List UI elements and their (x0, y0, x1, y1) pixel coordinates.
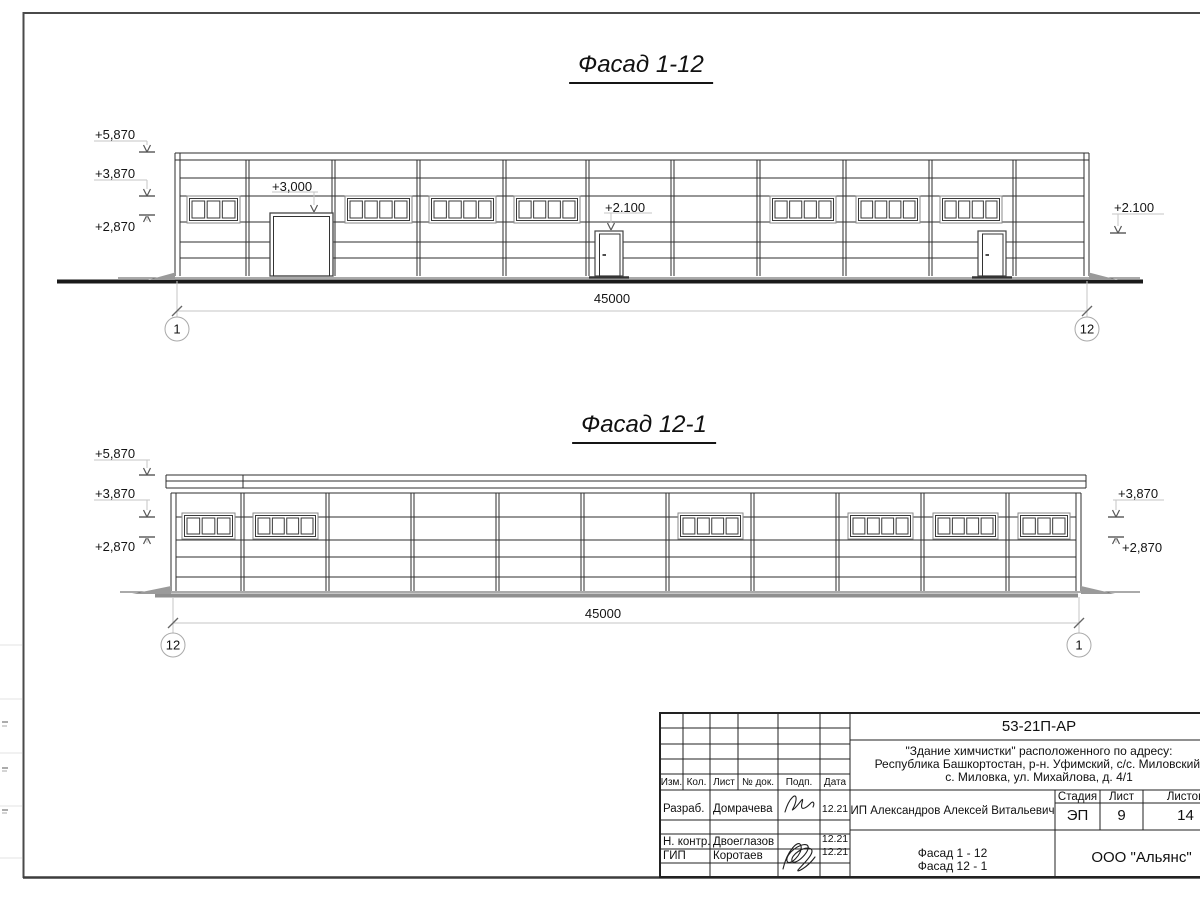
titleblock-code: 53-21П-АР (850, 718, 1200, 735)
rev-header-podp: Подп. (778, 777, 820, 788)
grid-axis-bubble-1b: 1 (1075, 638, 1082, 653)
grid-axis-bubble-12: 12 (1080, 322, 1094, 337)
sheets-value: 14 (1143, 807, 1200, 824)
elevation-label-f2-2870: +2,870 (95, 539, 135, 554)
doc-name-line2: Фасад 12 - 1 (850, 859, 1055, 873)
row-name-gip: Коротаев (713, 850, 763, 862)
elevation-label-f2-5870: +5,870 (95, 446, 135, 461)
rev-header-kol: Кол. (683, 777, 710, 788)
facade-1-12-title: Фасад 1-12 (569, 51, 713, 84)
grid-axis-bubble-1: 1 (173, 322, 180, 337)
elevation-label-f1-2870: +2,870 (95, 219, 135, 234)
titleblock-project-line1: "Здание химчистки" расположенного по адр… (850, 744, 1200, 758)
doc-name-line1: Фасад 1 - 12 (850, 846, 1055, 860)
stage-header: Стадия (1055, 791, 1100, 803)
elevation-label-f2-3870: +3,870 (95, 486, 135, 501)
row-date-gip: 12.21 (820, 846, 850, 858)
rev-header-list: Лист (710, 777, 738, 788)
rev-header-data: Дата (820, 777, 850, 788)
drawing-sheet: Фасад 1-12 +5,870 +3,870 +2,870 +3,000 +… (0, 0, 1200, 900)
sheets-header: Листов (1143, 791, 1200, 803)
elevation-label-f2-right-3870: +3,870 (1118, 486, 1158, 501)
rev-header-izm: Изм. (660, 777, 683, 788)
facade-12-1-title: Фасад 12-1 (572, 411, 716, 444)
row-role-razrab: Разраб. (663, 803, 704, 815)
row-role-gip: ГИП (663, 850, 686, 862)
right-elevation-label-f1: +2.100 (1114, 200, 1154, 215)
elevation-label-f1-5870: +5,870 (95, 127, 135, 142)
titleblock-project-line3: с. Миловка, ул. Михайлова, д. 4/1 (850, 770, 1200, 784)
grid-axis-bubble-12b: 12 (166, 638, 180, 653)
elevation-label-f2-right-2870: +2,870 (1122, 540, 1162, 555)
rev-header-ndok: № док. (738, 777, 778, 788)
sheet-header: Лист (1100, 791, 1143, 803)
titleblock-client: ИП Александров Алексей Витальевич (850, 805, 1055, 817)
gate-elevation-label: +3,000 (272, 179, 312, 194)
door-elevation-label: +2.100 (605, 200, 645, 215)
row-date-nkontr: 12.21 (820, 833, 850, 845)
titleblock-project-line2: Республика Башкортостан, р-н. Уфимский, … (850, 757, 1200, 771)
row-date-razrab: 12.21 (820, 803, 850, 815)
dimension-label-f1: 45000 (594, 291, 630, 306)
stage-value: ЭП (1055, 807, 1100, 824)
dimension-label-f2: 45000 (585, 606, 621, 621)
row-role-nkontr: Н. контр. (663, 836, 710, 848)
row-name-razrab: Домрачева (713, 803, 773, 815)
row-name-nkontr: Двоеглазов (713, 836, 774, 848)
elevation-label-f1-3870: +3,870 (95, 166, 135, 181)
company-name: ООО "Альянс" (1055, 849, 1200, 866)
sheet-value: 9 (1100, 807, 1143, 824)
